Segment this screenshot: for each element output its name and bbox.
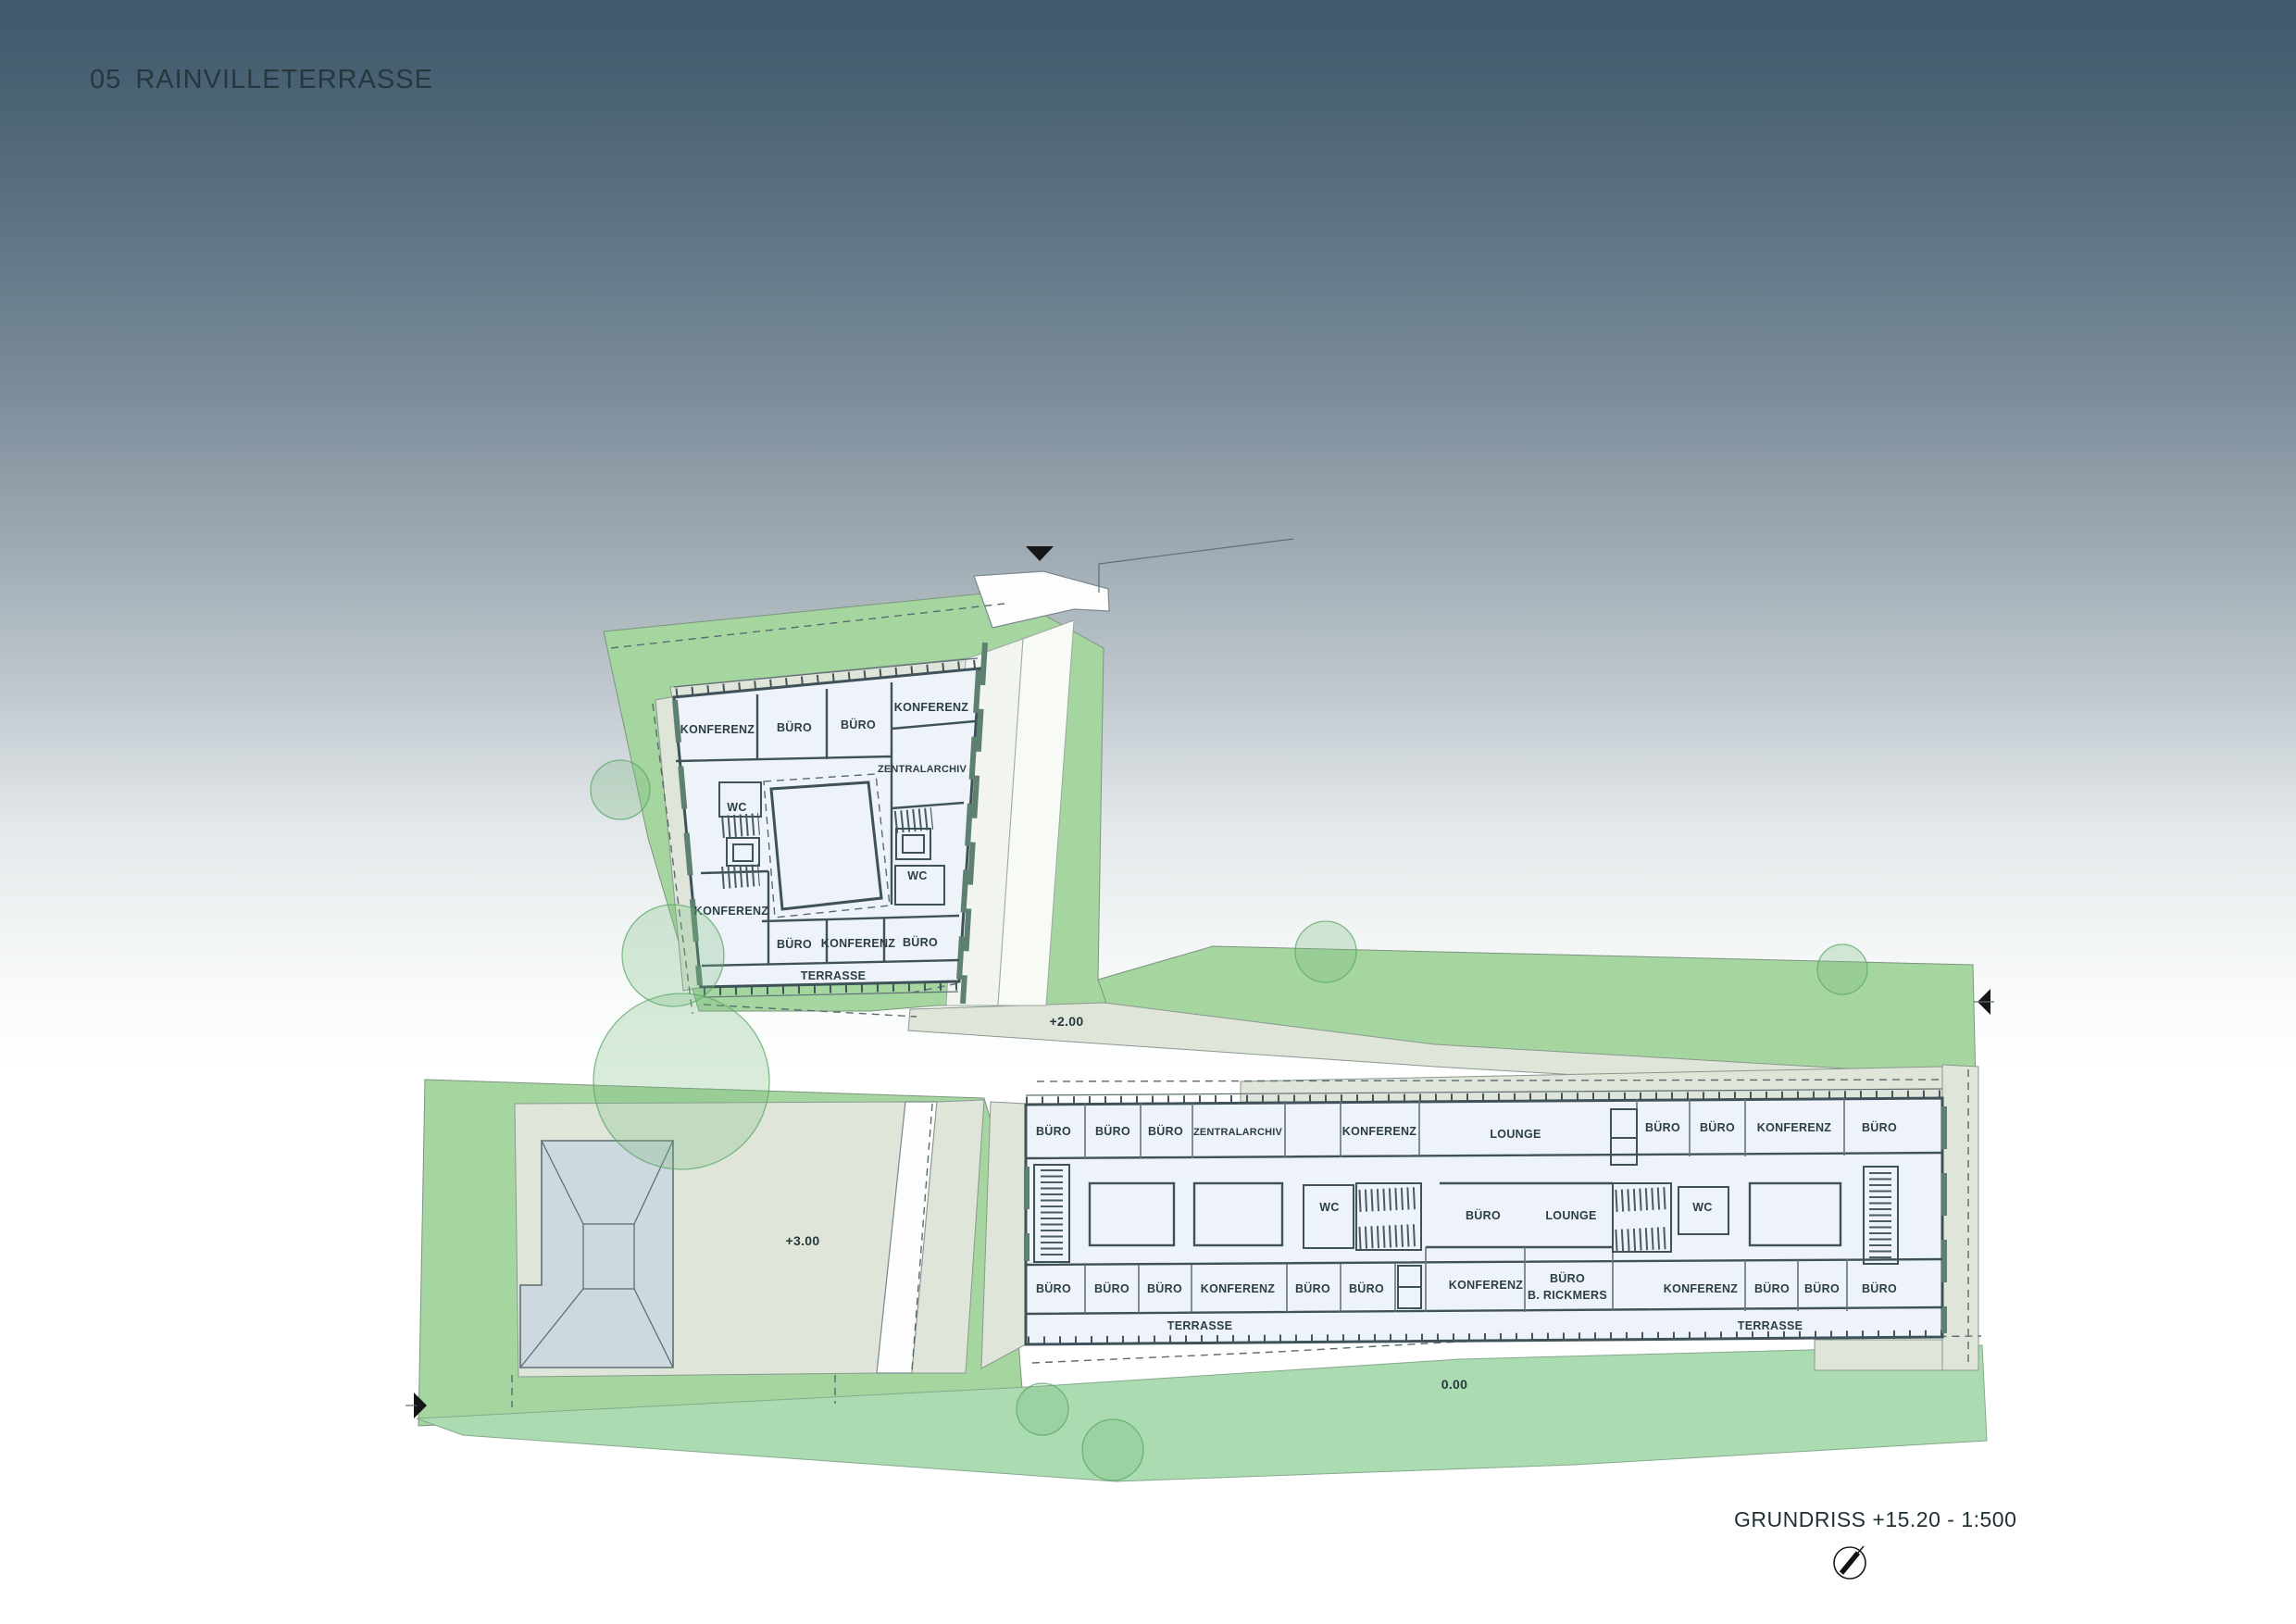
room-label-buero-rickmers: B. RICKMERS — [1528, 1289, 1607, 1302]
drawing-caption: GRUNDRISS +15.20 - 1:500 — [1734, 1507, 2016, 1532]
tree-icon — [622, 905, 724, 1006]
room-label-konferenz: KONFERENZ — [1757, 1121, 1832, 1134]
terrasse-label: TERRASSE — [1738, 1319, 1803, 1332]
room-label-wc: WC — [727, 801, 746, 814]
terrasse-label: TERRASSE — [801, 969, 866, 982]
room-label-buero: BÜRO — [1095, 1124, 1130, 1138]
level-label-yard: +3.00 — [786, 1233, 820, 1248]
north-arrow-icon — [1834, 1546, 1865, 1579]
room-label-wc: WC — [1319, 1201, 1339, 1214]
room-label-wc: WC — [907, 869, 927, 882]
room-label-buero: BÜRO — [1754, 1281, 1790, 1295]
room-label-konferenz: KONFERENZ — [1449, 1279, 1524, 1292]
tree-icon — [1295, 921, 1356, 982]
room-label-lounge: LOUNGE — [1490, 1128, 1541, 1141]
atrium — [771, 782, 881, 909]
room-label-buero: BÜRO — [1862, 1120, 1897, 1134]
room-label-zentralarchiv: ZENTRALARCHIV — [1193, 1127, 1283, 1138]
room-label-zentralarchiv: ZENTRALARCHIV — [878, 764, 967, 775]
tree-icon — [1817, 944, 1867, 994]
room-label-buero: BÜRO — [777, 937, 812, 951]
level-label-path: +2.00 — [1050, 1014, 1084, 1029]
meeting-room — [1090, 1183, 1174, 1245]
room-label-buero: BÜRO — [1645, 1120, 1680, 1134]
room-label-buero: BÜRO — [1148, 1124, 1183, 1138]
room-label-buero-rickmers: BÜRO — [1550, 1271, 1585, 1285]
room-label-lounge: LOUNGE — [1545, 1209, 1596, 1222]
room-label-konferenz: KONFERENZ — [894, 701, 969, 714]
room-label-buero: BÜRO — [1036, 1281, 1071, 1295]
room-label-konferenz: KONFERENZ — [680, 723, 755, 736]
room-label-buero: BÜRO — [1804, 1281, 1840, 1295]
room-label-buero: BÜRO — [1862, 1281, 1897, 1295]
room-label-wc: WC — [1692, 1201, 1712, 1214]
room-label-buero: BÜRO — [903, 935, 938, 949]
room-label-konferenz: KONFERENZ — [1664, 1282, 1739, 1295]
room-label-buero: BÜRO — [1466, 1208, 1501, 1222]
tree-icon — [1082, 1419, 1143, 1480]
room-label-buero: BÜRO — [1349, 1281, 1384, 1295]
room-label-buero: BÜRO — [1295, 1281, 1330, 1295]
room-label-buero: BÜRO — [841, 718, 876, 731]
room-label-buero: BÜRO — [1700, 1120, 1735, 1134]
meeting-room — [1750, 1183, 1841, 1245]
room-label-konferenz: KONFERENZ — [821, 937, 896, 950]
site-plan-page: 05 RAINVILLETERRASSE — [0, 0, 2296, 1624]
entry-marker-down-icon — [1026, 546, 1054, 561]
terrasse-label: TERRASSE — [1167, 1319, 1232, 1332]
tree-icon — [593, 993, 769, 1169]
existing-roof-building — [520, 1141, 673, 1368]
room-label-konferenz: KONFERENZ — [1342, 1125, 1417, 1138]
level-label-ground: 0.00 — [1441, 1377, 1467, 1392]
long-building: BÜRO BÜRO BÜRO ZENTRALARCHIV KONFERENZ L… — [1026, 1089, 1944, 1344]
tree-icon — [591, 760, 650, 819]
room-label-buero: BÜRO — [1094, 1281, 1129, 1295]
tree-icon — [1017, 1383, 1068, 1435]
room-label-buero: BÜRO — [1036, 1124, 1071, 1138]
room-label-konferenz: KONFERENZ — [1201, 1282, 1276, 1295]
site-plan-svg: KONFERENZ BÜRO BÜRO KONFERENZ ZENTRALARC… — [0, 0, 2296, 1624]
room-label-buero: BÜRO — [777, 720, 812, 734]
room-label-buero: BÜRO — [1147, 1281, 1182, 1295]
meeting-room — [1194, 1183, 1282, 1245]
